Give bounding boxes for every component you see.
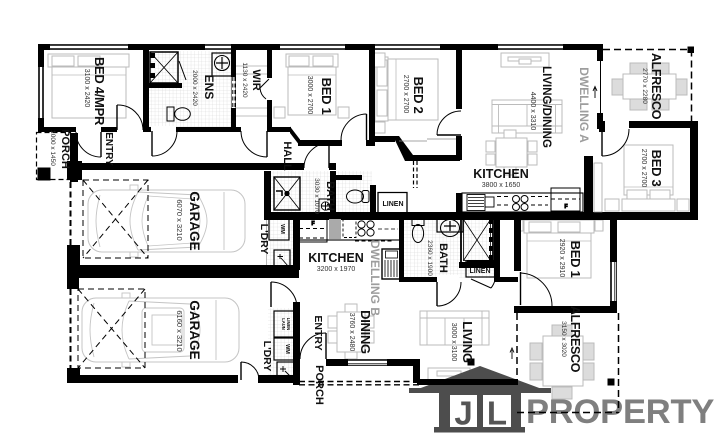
svg-text:WM: WM bbox=[284, 344, 290, 354]
svg-text:L: L bbox=[487, 395, 507, 432]
svg-text:3800 x 1650: 3800 x 1650 bbox=[482, 182, 521, 189]
svg-text:GARAGE: GARAGE bbox=[187, 300, 202, 359]
svg-text:3200 x 1970: 3200 x 1970 bbox=[317, 266, 356, 273]
svg-text:LINEN: LINEN bbox=[470, 268, 491, 275]
svg-text:3760 x 2480: 3760 x 2480 bbox=[348, 313, 355, 352]
svg-text:BED 1: BED 1 bbox=[319, 78, 334, 115]
svg-text:DWELLING A: DWELLING A bbox=[577, 67, 591, 143]
svg-text:ENTRY: ENTRY bbox=[103, 132, 114, 166]
svg-text:J: J bbox=[454, 395, 472, 432]
svg-text:2360 x 1900: 2360 x 1900 bbox=[426, 240, 433, 276]
svg-text:ENTRY: ENTRY bbox=[312, 315, 324, 350]
svg-text:3000 x 3100: 3000 x 3100 bbox=[450, 323, 457, 362]
svg-text:2700 x 2700: 2700 x 2700 bbox=[640, 149, 647, 188]
svg-text:2700 x 2700: 2700 x 2700 bbox=[402, 75, 409, 114]
svg-text:6160 x 3210: 6160 x 3210 bbox=[175, 310, 184, 351]
svg-text:2920 x 2910: 2920 x 2910 bbox=[558, 239, 565, 278]
svg-text:2000 x 2420: 2000 x 2420 bbox=[191, 70, 198, 106]
svg-text:PORCH: PORCH bbox=[313, 365, 325, 405]
svg-text:4400 x 3310: 4400 x 3310 bbox=[529, 92, 536, 131]
svg-text:ALFRESCO: ALFRESCO bbox=[568, 306, 582, 373]
svg-text:LINEN: LINEN bbox=[383, 201, 404, 208]
svg-text:1130 x 2420: 1130 x 2420 bbox=[241, 62, 248, 98]
svg-text:KITCHEN: KITCHEN bbox=[473, 167, 529, 181]
svg-text:1000 x 1450: 1000 x 1450 bbox=[49, 130, 56, 166]
svg-text:WIR: WIR bbox=[250, 69, 262, 90]
svg-text:3000 x 2700: 3000 x 2700 bbox=[306, 76, 313, 115]
svg-text:3030 x 1070: 3030 x 1070 bbox=[313, 178, 320, 214]
svg-text:DWELLING B: DWELLING B bbox=[368, 240, 382, 316]
svg-text:F: F bbox=[564, 204, 567, 210]
svg-text:ENS: ENS bbox=[202, 75, 216, 100]
svg-text:PORCH: PORCH bbox=[59, 129, 71, 169]
svg-text:GARAGE: GARAGE bbox=[187, 191, 202, 250]
svg-text:BATH: BATH bbox=[437, 243, 449, 273]
svg-text:LAUN: LAUN bbox=[281, 318, 286, 330]
svg-text:L'DRY: L'DRY bbox=[258, 224, 270, 255]
svg-text:3100 x 2420: 3100 x 2420 bbox=[83, 69, 90, 108]
svg-text:3150 x 3020: 3150 x 3020 bbox=[560, 321, 567, 357]
svg-text:BED 4/MPR: BED 4/MPR bbox=[92, 57, 107, 126]
svg-text:BED 1: BED 1 bbox=[568, 241, 583, 278]
svg-text:2770 x 2280: 2770 x 2280 bbox=[641, 68, 648, 104]
svg-text:KITCHEN: KITCHEN bbox=[308, 251, 364, 265]
svg-text:BED 2: BED 2 bbox=[411, 77, 426, 114]
svg-text:6070 x 3210: 6070 x 3210 bbox=[175, 199, 184, 240]
svg-text:BED 3: BED 3 bbox=[649, 150, 664, 187]
svg-text:L'DRY: L'DRY bbox=[261, 341, 273, 372]
svg-text:LIVING/DINING: LIVING/DINING bbox=[540, 66, 552, 148]
svg-text:DINING: DINING bbox=[358, 310, 373, 354]
svg-text:BATH: BATH bbox=[324, 181, 336, 211]
svg-text:ALFRESCO: ALFRESCO bbox=[649, 53, 663, 120]
svg-text:F: F bbox=[311, 221, 314, 227]
svg-text:HALL: HALL bbox=[281, 141, 293, 171]
svg-text:WM: WM bbox=[279, 224, 285, 234]
svg-text:LINEN: LINEN bbox=[286, 318, 291, 331]
svg-text:LIVING: LIVING bbox=[460, 321, 475, 363]
